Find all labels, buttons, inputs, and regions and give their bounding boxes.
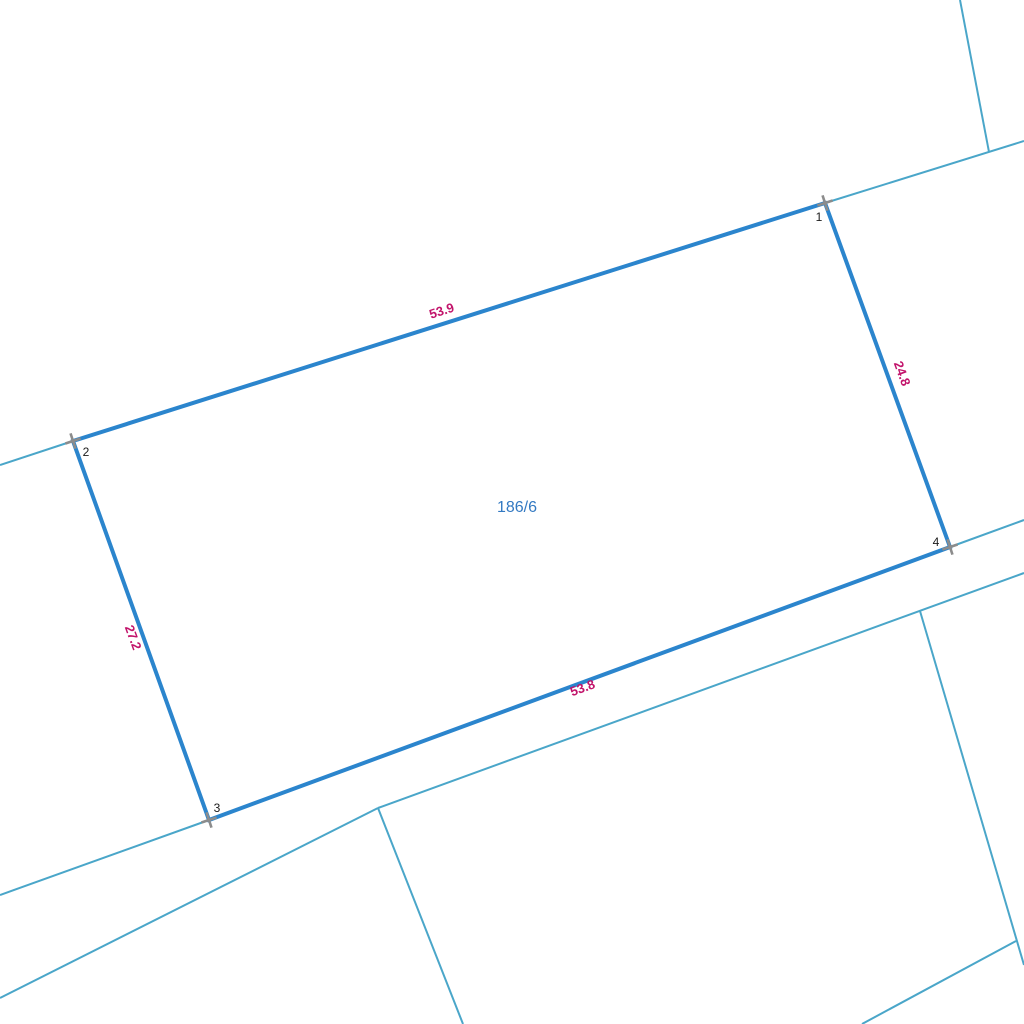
vertex-number: 4 [933, 535, 940, 549]
neighbor-boundary-line [0, 808, 378, 998]
neighbor-boundary-line [378, 808, 463, 1024]
dimension-label: 53.8 [568, 676, 597, 699]
parcel-label: 186/6 [497, 499, 537, 516]
dimension-label: 24.8 [891, 359, 914, 388]
neighbor-boundary-line [920, 611, 1024, 965]
neighbor-boundary-line [950, 520, 1024, 547]
neighbor-boundary-line [862, 941, 1016, 1024]
map-canvas[interactable]: 1234 53.924.827.253.8 186/6 [0, 0, 1024, 1024]
vertex-marker [940, 537, 960, 557]
vertex-number: 3 [214, 801, 221, 815]
vertex-marker [63, 431, 83, 451]
neighbor-boundary-line [378, 573, 1024, 808]
map-viewport[interactable]: 1234 53.924.827.253.8 186/6 [0, 0, 1024, 1024]
neighbor-boundary-line [960, 0, 989, 152]
neighbor-boundary-line [0, 441, 73, 465]
neighbor-boundary-line [0, 820, 209, 895]
vertex-number: 2 [83, 445, 90, 459]
vertex-number: 1 [816, 210, 823, 224]
neighbor-boundary-line [825, 141, 1024, 203]
dimension-label: 53.9 [427, 300, 456, 322]
